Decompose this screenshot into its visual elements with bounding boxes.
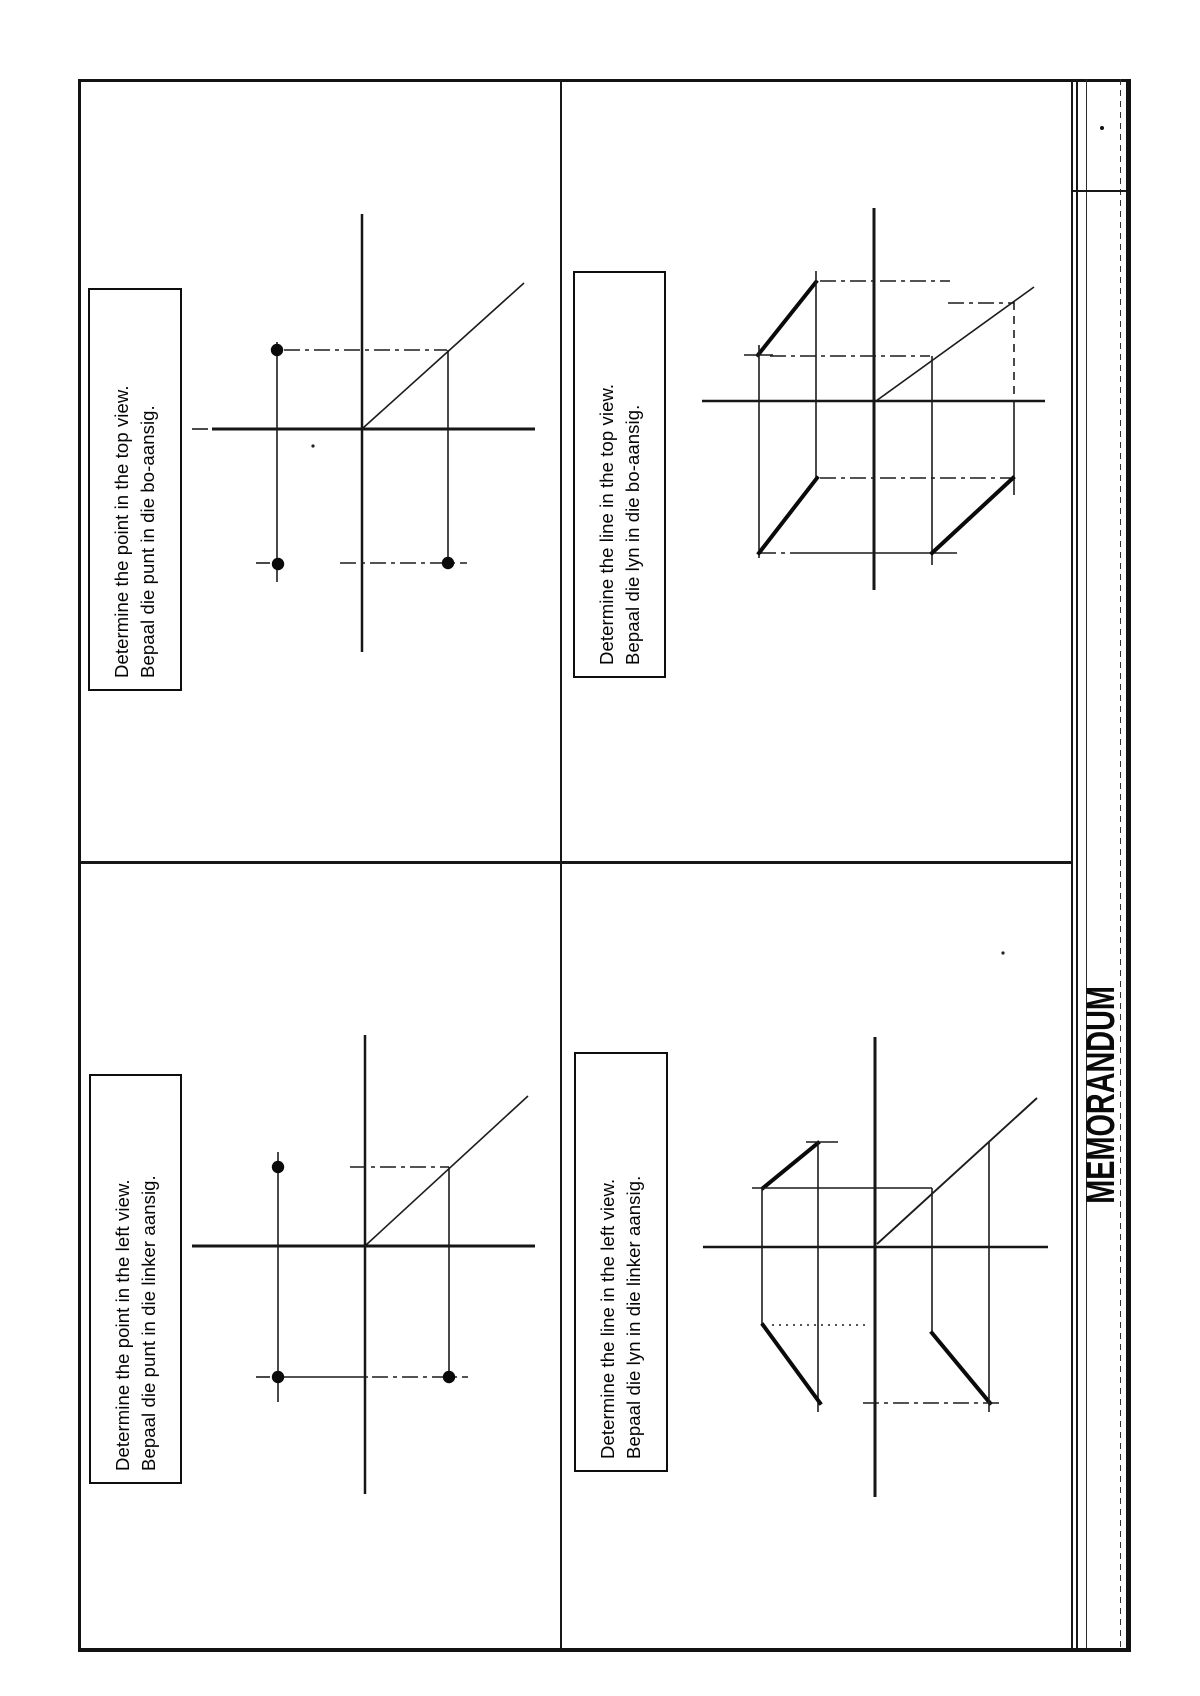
miter-line [366,1096,528,1245]
diagram-point-left-view [192,1035,535,1494]
scanned-worksheet-page: MEMORANDUM Determine the point in the to… [0,0,1200,1696]
scan-speck [1001,951,1004,954]
projection-diagrams [0,0,1200,1696]
miter-line [876,287,1034,401]
given-line-segment [758,282,816,355]
miter-line [363,283,524,428]
point-marker [443,1371,455,1383]
diagram-line-top-view [702,208,1045,590]
diagram-line-left-view [703,1037,1048,1497]
point-marker [442,557,454,569]
given-line-segment [763,1143,818,1188]
miter-line [877,1098,1037,1244]
answer-line-segment [763,1325,820,1403]
answer-line-segment [932,1333,990,1403]
point-marker [271,344,283,356]
answer-line-segment [932,478,1013,553]
answer-line-segment [759,478,817,553]
scan-speck [311,444,314,447]
diagram-point-top-view [192,214,535,652]
point-marker [272,1161,284,1173]
point-marker [272,558,284,570]
point-marker [272,1371,284,1383]
